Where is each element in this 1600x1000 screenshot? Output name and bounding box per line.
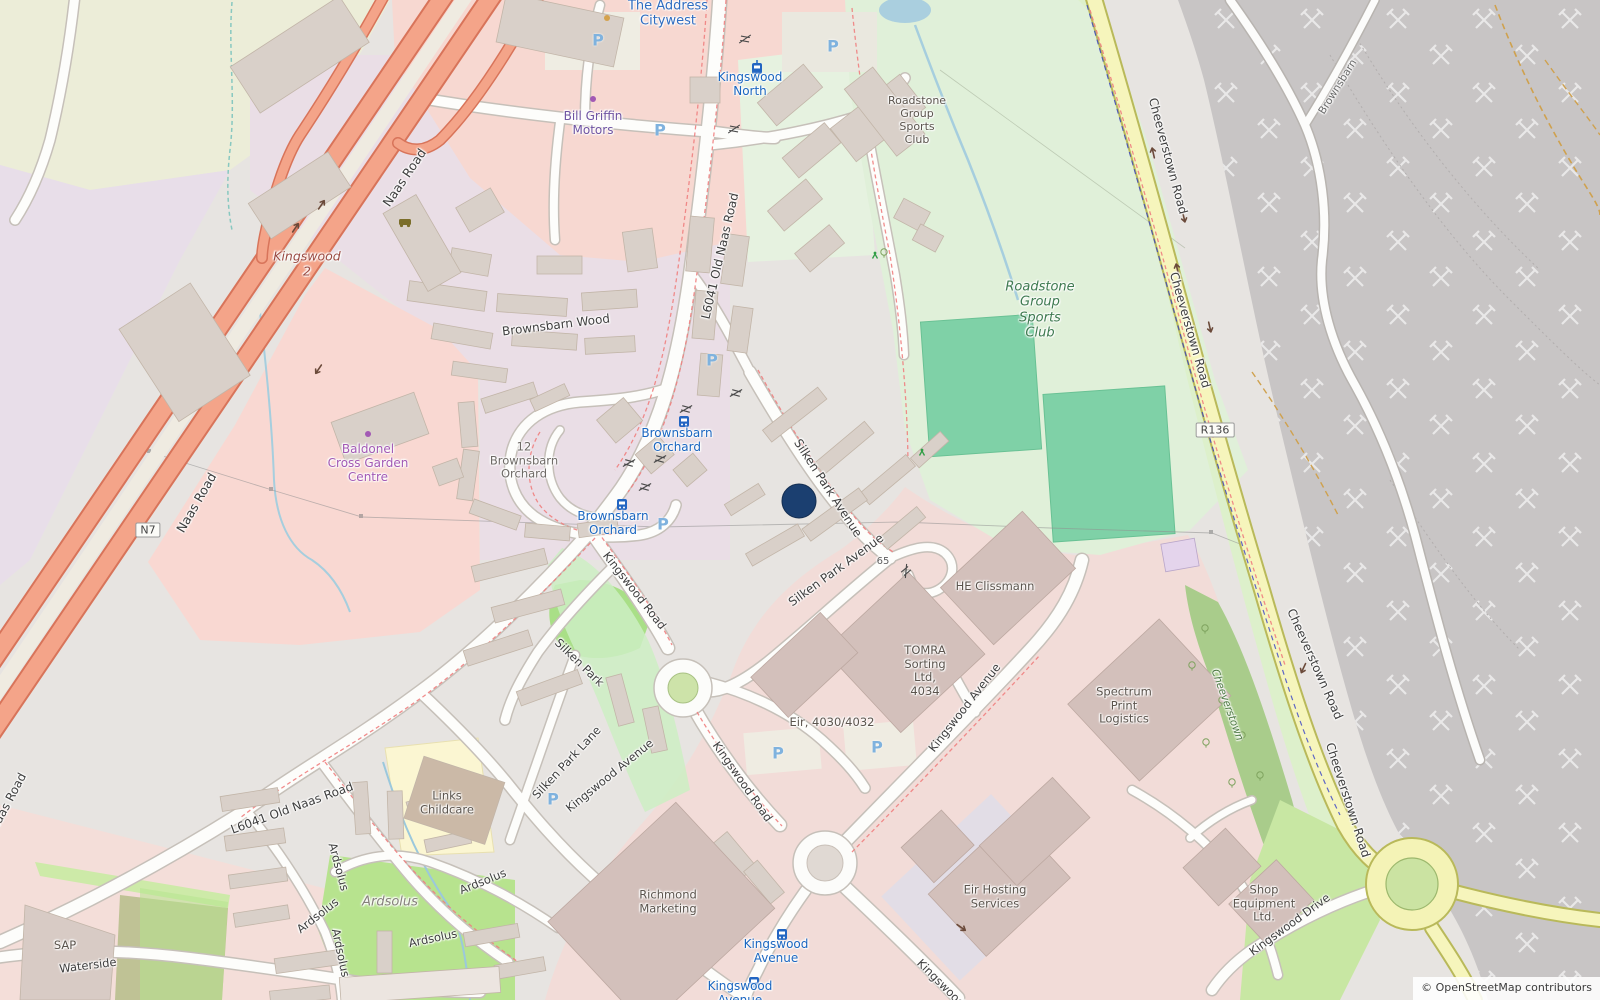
map-canvas[interactable]: The Address Citywest Kingswood North Bil… [0,0,1600,1000]
road-shield-n7: N7 [135,523,160,538]
shop-node-icon [365,431,371,437]
map-marker[interactable] [782,484,817,519]
attribution[interactable]: © OpenStreetMap contributors [1413,977,1600,1000]
road-shield-r136: R136 [1196,423,1235,438]
poi-node-icon [604,15,610,21]
shop-node-icon [590,96,596,102]
